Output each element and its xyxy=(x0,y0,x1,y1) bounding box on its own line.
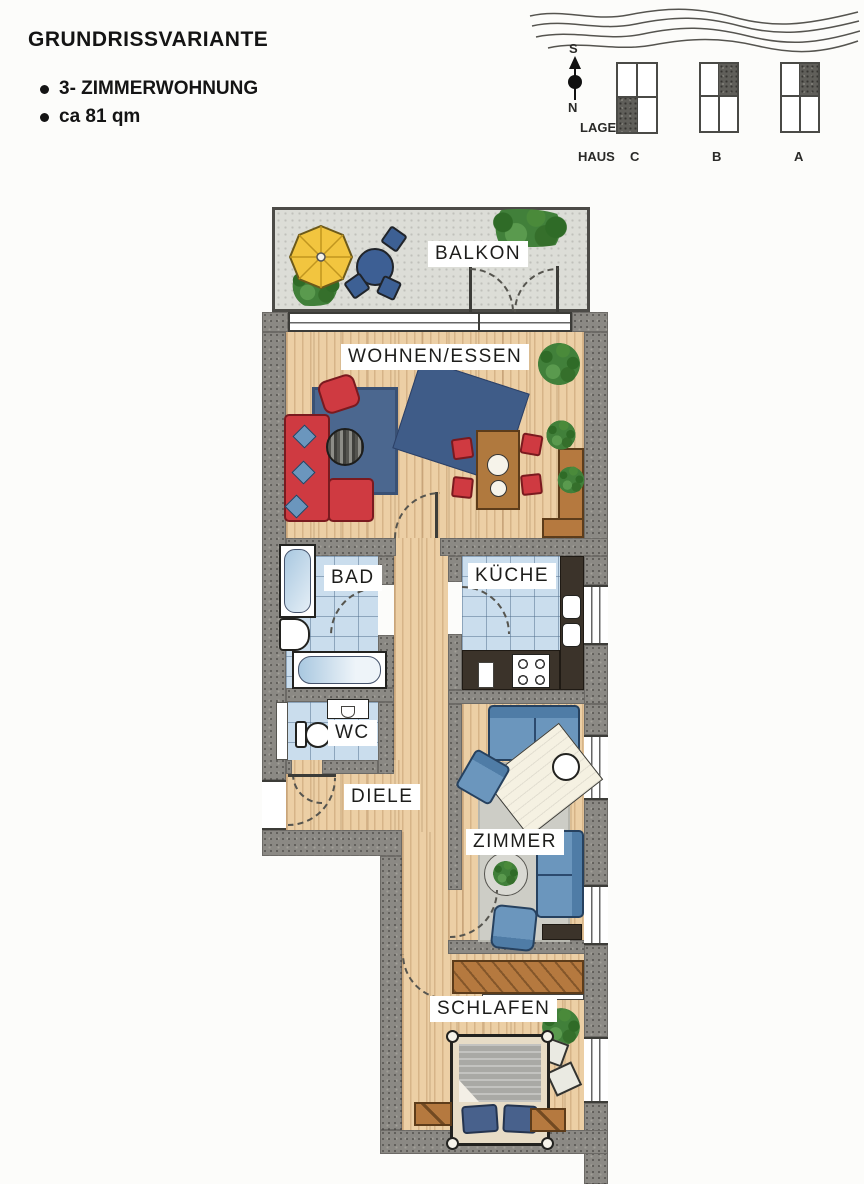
room-label-balkon: BALKON xyxy=(428,241,528,267)
schlafen-window xyxy=(584,1037,608,1103)
umbrella-icon xyxy=(288,224,354,290)
kitchen-cabinet-front xyxy=(478,662,494,688)
kitchen-sink xyxy=(562,623,581,647)
sink-bowl xyxy=(341,706,355,718)
room-label-zimmer: ZIMMER xyxy=(466,829,564,855)
wall xyxy=(262,830,402,856)
wall xyxy=(572,312,608,332)
wall xyxy=(584,800,608,885)
room-label-schlafen: SCHLAFEN xyxy=(430,996,557,1022)
wall xyxy=(262,312,288,332)
wall xyxy=(440,538,608,556)
wall xyxy=(584,945,608,1037)
dining-chair xyxy=(451,437,475,461)
wall xyxy=(378,702,394,774)
room-label-bad: BAD xyxy=(324,565,382,591)
side-table xyxy=(552,753,580,781)
blanket-fold xyxy=(459,1080,479,1102)
room-label-wohnen-essen: WOHNEN/ESSEN xyxy=(341,344,529,370)
nightstand xyxy=(414,1102,452,1126)
wall xyxy=(584,704,608,735)
wall xyxy=(448,704,462,890)
balcony-door xyxy=(478,312,572,332)
bowl xyxy=(487,454,509,476)
hallway-floor xyxy=(402,832,448,954)
wall xyxy=(322,760,378,774)
wc-sink xyxy=(327,699,369,719)
bathroom-sink xyxy=(279,618,310,651)
wc-wall-niche xyxy=(276,702,288,760)
armchair xyxy=(490,904,538,952)
dining-chair xyxy=(451,476,474,499)
wall xyxy=(584,556,608,585)
sofa xyxy=(328,478,374,522)
living-room-window xyxy=(288,312,478,332)
wall xyxy=(380,856,402,1130)
wall xyxy=(448,556,462,582)
kueche-window xyxy=(584,585,608,645)
sideboard xyxy=(542,518,584,538)
dining-chair xyxy=(520,473,543,496)
wall xyxy=(448,634,462,690)
nightstand xyxy=(530,1108,566,1132)
bed-post xyxy=(446,1137,459,1150)
room-label-kueche: KÜCHE xyxy=(468,563,556,589)
coffee-table xyxy=(326,428,364,466)
tub-basin xyxy=(298,656,381,684)
zimmer-window xyxy=(584,885,608,945)
dining-table xyxy=(476,430,520,510)
shower-tub xyxy=(279,544,316,618)
kitchen-sink xyxy=(562,595,581,619)
bed-post xyxy=(446,1030,459,1043)
door-leaf xyxy=(288,774,336,777)
wall xyxy=(584,332,608,556)
wall xyxy=(584,645,608,704)
room-label-diele: DIELE xyxy=(344,784,420,810)
pillow xyxy=(461,1104,499,1134)
wardrobe xyxy=(452,960,584,994)
bed-post xyxy=(541,1137,554,1150)
stove xyxy=(512,654,550,688)
entrance-opening xyxy=(262,780,286,830)
bowl xyxy=(490,480,507,497)
bathtub xyxy=(292,651,387,689)
tv-board xyxy=(542,924,582,940)
floor-plan: BALKON WOHNEN/ESSEN BAD KÜCHE WC DIELE Z… xyxy=(0,0,864,1184)
wall xyxy=(286,760,292,774)
plant xyxy=(491,859,520,888)
bed-post xyxy=(541,1030,554,1043)
tub-basin xyxy=(284,549,311,613)
room-label-wc: WC xyxy=(328,720,377,746)
plant-table xyxy=(484,852,528,896)
dining-chair xyxy=(519,432,543,456)
